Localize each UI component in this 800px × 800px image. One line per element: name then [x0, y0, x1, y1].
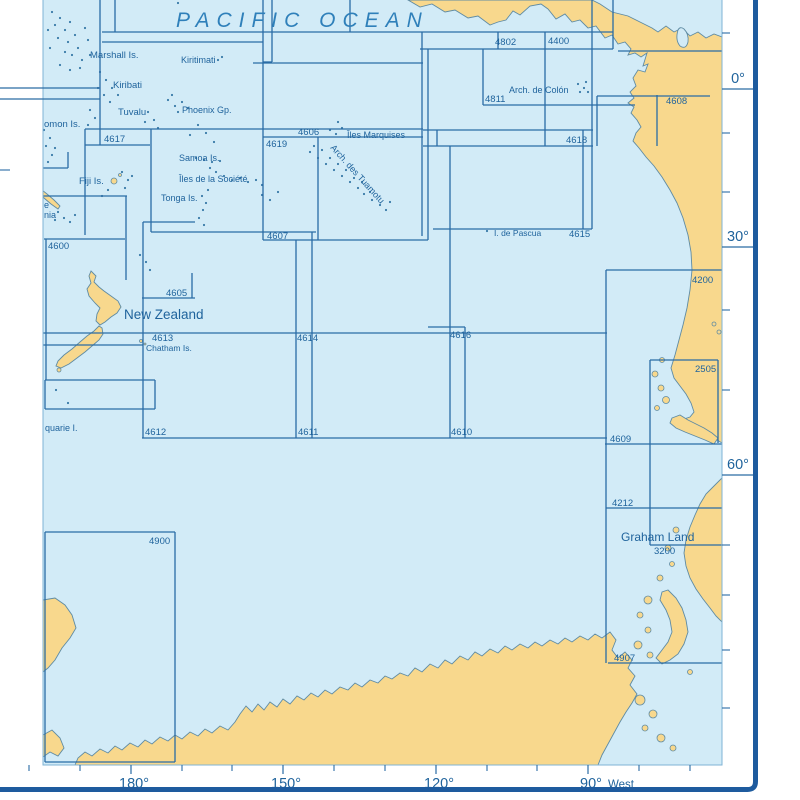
islet — [658, 385, 664, 391]
island-dot — [45, 145, 47, 147]
chart-number-label[interactable]: 4612 — [145, 427, 166, 438]
chart-number-label[interactable]: 4400 — [548, 36, 569, 47]
place-label: Kiritimati — [181, 55, 216, 65]
island-dot — [87, 124, 89, 126]
island-dot — [131, 175, 133, 177]
island-dot — [51, 11, 53, 13]
island-dot — [79, 67, 81, 69]
island-dot — [177, 2, 179, 4]
island-dot — [77, 47, 79, 49]
islet — [57, 368, 61, 372]
island-dot — [117, 94, 119, 96]
island-dot — [337, 121, 339, 123]
island-dot — [47, 29, 49, 31]
islet — [657, 575, 663, 581]
island-dot — [174, 105, 176, 107]
chart-number-label[interactable]: 4802 — [495, 37, 516, 48]
island-dot — [63, 217, 65, 219]
island-dot — [585, 81, 587, 83]
chart-number-label[interactable]: 3200 — [654, 546, 675, 557]
place-label: Marshall Is. — [90, 50, 139, 61]
left-margin — [0, 0, 43, 800]
place-label: Chatham Is. — [146, 343, 192, 353]
islet — [644, 596, 652, 604]
island-dot — [49, 137, 51, 139]
island-dot — [67, 41, 69, 43]
latitude-label: 0° — [731, 71, 745, 87]
island-dot — [124, 187, 126, 189]
islet — [670, 562, 675, 567]
island-dot — [587, 91, 589, 93]
islet — [688, 670, 693, 675]
place-label: e — [44, 200, 49, 210]
chart-number-label[interactable]: 4200 — [692, 275, 713, 286]
place-label: Tonga Is. — [161, 193, 198, 203]
island-dot — [69, 69, 71, 71]
island-dot — [59, 17, 61, 19]
island-dot — [57, 211, 59, 213]
chart-number-label[interactable]: 4613 — [152, 333, 173, 344]
right-margin — [722, 0, 800, 800]
island-dot — [385, 209, 387, 211]
island-dot — [255, 179, 257, 181]
island-dot — [59, 64, 61, 66]
map-area: PACIFIC OCEANMarshall Is.KiritimatiKirib… — [40, 0, 722, 765]
island-dot — [145, 261, 147, 263]
island-dot — [333, 169, 335, 171]
chart-number-label[interactable]: 4907 — [614, 653, 635, 664]
island-dot — [127, 179, 129, 181]
island-dot — [197, 124, 199, 126]
island-dot — [277, 191, 279, 193]
chart-number-label[interactable]: 4614 — [297, 333, 318, 344]
island-dot — [337, 163, 339, 165]
island-dot — [205, 132, 207, 134]
place-label: I. de Pascua — [494, 228, 542, 238]
chart-number-label[interactable]: 4617 — [104, 134, 125, 145]
island-dot — [87, 39, 89, 41]
island-dot — [363, 193, 365, 195]
island-dot — [217, 59, 219, 61]
islet — [652, 371, 658, 377]
islet — [655, 406, 660, 411]
island-dot — [207, 189, 209, 191]
island-dot — [341, 175, 343, 177]
place-label: Samoa Is. — [179, 153, 220, 163]
island-dot — [329, 157, 331, 159]
chart-number-label[interactable]: 4811 — [485, 94, 505, 105]
chart-number-label[interactable]: 4615 — [569, 229, 590, 240]
islet — [657, 734, 665, 742]
island-dot — [209, 167, 211, 169]
place-label: Kiribati — [113, 80, 142, 91]
island-dot — [54, 147, 56, 149]
island-dot — [203, 224, 205, 226]
island-dot — [198, 217, 200, 219]
chart-number-label[interactable]: 4611 — [298, 427, 318, 438]
place-label: Arch. de Colón — [509, 85, 569, 95]
chart-number-label[interactable]: 4609 — [610, 434, 631, 445]
island-dot — [64, 51, 66, 53]
island-dot — [84, 27, 86, 29]
island-dot — [144, 121, 146, 123]
place-label: Fiji Is. — [79, 176, 104, 187]
islet — [642, 725, 648, 731]
islet — [670, 745, 676, 751]
place-label: Graham Land — [621, 530, 694, 544]
island-dot — [94, 117, 96, 119]
islet — [637, 612, 643, 618]
island-dot — [181, 101, 183, 103]
island-dot — [64, 29, 66, 31]
islet — [140, 340, 143, 343]
island-dot — [579, 91, 581, 93]
island-dot — [357, 187, 359, 189]
island-dot — [67, 402, 69, 404]
latitude-label: 30° — [727, 229, 749, 245]
latitude-label: 60° — [727, 457, 749, 473]
island-dot — [349, 181, 351, 183]
island-dot — [577, 83, 579, 85]
island-dot — [54, 24, 56, 26]
island-dot — [189, 134, 191, 136]
place-label: Tuvalu — [118, 107, 146, 118]
island-dot — [149, 269, 151, 271]
chart-number-label[interactable]: 4606 — [298, 127, 319, 138]
island-dot — [121, 171, 123, 173]
island-dot — [89, 109, 91, 111]
island-dot — [107, 189, 109, 191]
chart-number-label[interactable]: 4618 — [566, 135, 587, 146]
island-dot — [309, 151, 311, 153]
islet — [635, 695, 645, 705]
island-dot — [57, 37, 59, 39]
island-dot — [321, 149, 323, 151]
islet — [111, 178, 117, 184]
island-dot — [51, 154, 53, 156]
island-dot — [49, 47, 51, 49]
island-dot — [389, 201, 391, 203]
place-label: omon Is. — [44, 119, 80, 130]
island-dot — [69, 21, 71, 23]
island-dot — [55, 389, 57, 391]
island-dot — [71, 54, 73, 56]
island-dot — [335, 133, 337, 135]
island-dot — [103, 94, 105, 96]
place-label: Îles Marquises — [346, 130, 406, 140]
map-title: PACIFIC OCEAN — [176, 9, 429, 32]
island-dot — [486, 230, 488, 232]
island-dot — [269, 199, 271, 201]
chart-number-label[interactable]: 4900 — [149, 536, 170, 547]
chart-number-label[interactable]: 4605 — [166, 288, 187, 299]
chart-number-label[interactable]: 4616 — [450, 330, 471, 341]
island-dot — [167, 99, 169, 101]
islet — [717, 330, 721, 334]
place-label: Îles de la Société — [178, 174, 248, 184]
island-dot — [313, 145, 315, 147]
island-dot — [221, 56, 223, 58]
island-dot — [177, 111, 179, 113]
islet — [645, 627, 651, 633]
island-dot — [139, 254, 141, 256]
island-dot — [325, 163, 327, 165]
island-dot — [74, 34, 76, 36]
place-label: quarie I. — [45, 423, 78, 433]
island-dot — [47, 161, 49, 163]
island-dot — [81, 59, 83, 61]
islet — [119, 174, 122, 177]
place-label: Phoenix Gp. — [182, 105, 232, 115]
island-dot — [205, 202, 207, 204]
island-dot — [213, 141, 215, 143]
island-dot — [201, 195, 203, 197]
chart-number-label[interactable]: 4619 — [266, 139, 287, 150]
place-label: New Zealand — [124, 307, 204, 322]
island-dot — [215, 171, 217, 173]
chart-number-label[interactable]: 4607 — [267, 231, 288, 242]
island-dot — [371, 199, 373, 201]
island-dot — [69, 221, 71, 223]
chart-index-map: PACIFIC OCEANMarshall Is.KiritimatiKirib… — [0, 0, 800, 800]
islet — [663, 397, 670, 404]
island-dot — [109, 101, 111, 103]
chart-index-page: PACIFIC OCEANMarshall Is.KiritimatiKirib… — [0, 0, 800, 800]
island-dot — [583, 87, 585, 89]
chart-number-label[interactable]: 4600 — [48, 241, 69, 252]
place-label: nia — [44, 210, 56, 220]
island-dot — [105, 79, 107, 81]
islet — [647, 652, 653, 658]
island-dot — [171, 94, 173, 96]
chart-number-label[interactable]: 2505 — [695, 364, 716, 375]
island-dot — [74, 214, 76, 216]
chart-number-label[interactable]: 4610 — [451, 427, 472, 438]
chart-number-label[interactable]: 4212 — [612, 498, 633, 509]
chart-number-label[interactable]: 4608 — [666, 96, 687, 107]
islet — [649, 710, 657, 718]
island-dot — [202, 209, 204, 211]
islet — [712, 322, 716, 326]
islet — [634, 641, 642, 649]
island-dot — [147, 111, 149, 113]
island-dot — [153, 119, 155, 121]
